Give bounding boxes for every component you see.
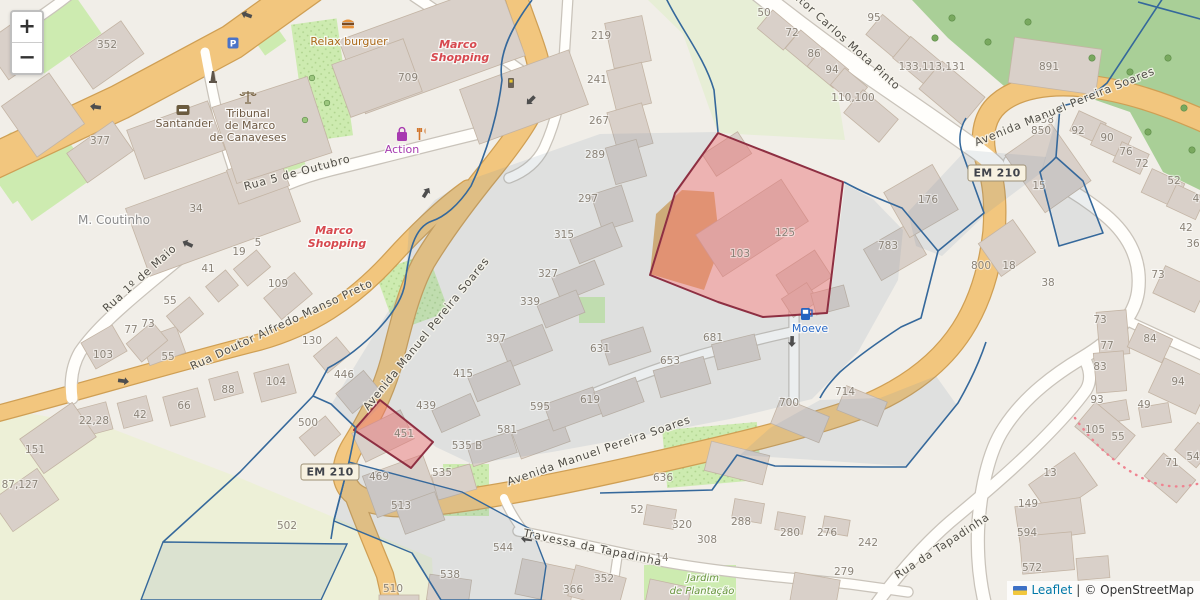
house-number: 280 [780,527,800,539]
poi-label: de Plantação [670,586,735,597]
house-number: 327 [538,268,558,280]
house-number: 572 [1022,562,1042,574]
map-canvas[interactable]: P [0,0,1200,600]
tree-icon [1181,105,1187,111]
house-number: 52 [630,504,643,516]
house-number: 42 [133,409,146,421]
poi-label: de Canaveses [210,131,287,144]
house-number: 55 [1111,431,1124,443]
tree-icon [309,75,315,81]
poi-label: Relax burguer [310,35,388,48]
house-number: 681 [703,332,723,344]
road-ref-badge: EM 210 [967,165,1026,182]
house-number: 700 [779,397,799,409]
house-number: 783 [878,240,898,252]
house-number: 502 [277,520,297,532]
house-number: 55 [161,351,174,363]
house-number: 41 [201,263,214,275]
house-number: 219 [591,30,611,42]
house-number: 36 [1186,238,1200,250]
basemap-svg: P [0,0,1200,600]
house-number: 22,28 [79,415,109,427]
house-number: 71 [1165,457,1178,469]
house-number: 110,100 [831,92,874,104]
house-number: 176 [918,194,938,206]
attribution-bar: Leaflet | © OpenStreetMap [1007,581,1200,600]
building [1076,556,1110,581]
poi-label: Shopping [431,51,490,64]
house-number: 242 [858,537,878,549]
house-number: 77 [1100,340,1113,352]
house-number: 446 [334,369,354,381]
parking-icon: P [228,38,239,50]
house-number: 709 [398,72,418,84]
poi-label: Marco [439,38,477,51]
house-number: 49 [1137,399,1150,411]
svg-text:P: P [230,40,237,50]
house-number: 714 [835,386,855,398]
house-number: 289 [585,149,605,161]
house-number: 439 [416,400,436,412]
house-number: 397 [486,333,506,345]
zoom-control: + − [10,10,44,75]
house-number: 288 [731,516,751,528]
house-number: 125 [775,227,795,239]
poi-label: M. Coutinho [78,213,150,227]
house-number: 94 [1171,376,1185,388]
house-number: 34 [189,203,203,215]
tree-icon [1025,19,1031,25]
tree-icon [324,100,330,106]
house-number: 535 [432,467,452,479]
house-number: 631 [590,343,610,355]
house-number: 581 [497,424,517,436]
house-number: 77 [124,324,137,336]
house-number: 73 [1093,314,1106,326]
house-number: 636 [653,472,673,484]
house-number: 84 [1143,333,1157,345]
poi-label: Jardim [685,573,719,584]
poi-label: Marco [315,224,353,237]
tree-icon [932,35,938,41]
house-number: 95 [867,12,880,24]
house-number: 595 [530,401,550,413]
house-number: 73 [1151,269,1164,281]
house-number: 594 [1017,527,1037,539]
house-number: 149 [1018,498,1038,510]
house-number: 619 [580,394,600,406]
house-number: 469 [369,471,389,483]
house-number: 103 [93,349,113,361]
house-number: 352 [97,39,117,51]
house-number: 800 [971,260,991,272]
ukraine-flag-icon [1013,586,1027,595]
house-number: 54 [1186,451,1200,463]
house-number: 76 [1119,146,1133,158]
house-number: 5 [255,237,262,249]
house-number: 55 [163,295,176,307]
house-number: 415 [453,368,473,380]
transit-stop-icon [508,78,514,88]
house-number: 72 [785,27,798,39]
bank-icon [177,105,190,115]
tree-icon [1189,147,1195,153]
house-number: 513 [391,500,411,512]
house-number: 653 [660,355,680,367]
house-number: 308 [697,534,717,546]
house-number: 500 [298,417,318,429]
tree-icon [1165,55,1171,61]
attribution-separator: | [1076,583,1080,597]
house-number: 105 [1085,424,1105,436]
house-number: 535 B [452,440,483,452]
house-number: 133,113,131 [899,61,966,73]
house-number: 352 [594,573,614,585]
tree-icon [1089,55,1095,61]
house-number: 72 [1135,158,1148,170]
house-number: 377 [90,135,110,147]
house-number: 151 [25,444,45,456]
house-number: 87,127 [2,479,39,491]
house-number: 544 [493,542,513,554]
house-number: 52 [1167,175,1180,187]
house-number: 339 [520,296,540,308]
house-number: 276 [817,527,837,539]
house-number: 18 [1002,260,1015,272]
house-number: 66 [177,400,191,412]
house-number: 510 [383,583,403,595]
house-number: 90 [1100,132,1113,144]
house-number: 109 [268,278,288,290]
leaflet-link[interactable]: Leaflet [1031,583,1072,597]
burger-icon [342,20,354,29]
house-number: 92 [1071,125,1084,137]
house-number: 86 [807,48,821,60]
house-number: 4 [1193,193,1200,205]
house-number: 93 [1090,394,1103,406]
building [379,595,419,600]
house-number: 267 [589,115,609,127]
house-number: 130 [302,335,322,347]
tree-icon [302,117,308,123]
house-number: 50 [757,7,770,19]
house-number: 320 [672,519,692,531]
house-number: 451 [394,428,414,440]
house-number: 73 [141,318,154,330]
house-number: 891 [1039,61,1059,73]
poi-label: Moeve [792,322,828,335]
house-number: 103 [730,248,750,260]
house-number: 366 [563,584,583,596]
tree-icon [1145,129,1151,135]
zoom-in-button[interactable]: + [12,12,42,43]
house-number: 38 [1041,277,1054,289]
poi-label: Action [385,143,419,156]
house-number: 13 [1043,467,1056,479]
road-ref-badge: EM 210 [300,464,359,481]
house-number: 83 [1093,361,1106,373]
osm-credit-link[interactable]: © OpenStreetMap [1084,583,1194,597]
house-number: 297 [578,193,598,205]
house-number: 241 [587,74,607,86]
poi-label: Santander [156,117,213,130]
house-number: 850 [1031,125,1051,137]
house-number: 42 [1179,222,1192,234]
boundary-area [141,542,347,600]
house-number: 315 [554,229,574,241]
poi-label: Shopping [308,237,367,250]
house-number: 279 [834,566,854,578]
house-number: 88 [221,384,234,396]
house-number: 538 [440,569,460,581]
house-number: 94 [825,64,839,76]
tree-icon [985,39,991,45]
tree-icon [949,15,955,21]
house-number: 104 [266,376,286,388]
zoom-out-button[interactable]: − [12,43,42,73]
house-number: 15 [1032,180,1045,192]
house-number: 19 [232,246,245,258]
